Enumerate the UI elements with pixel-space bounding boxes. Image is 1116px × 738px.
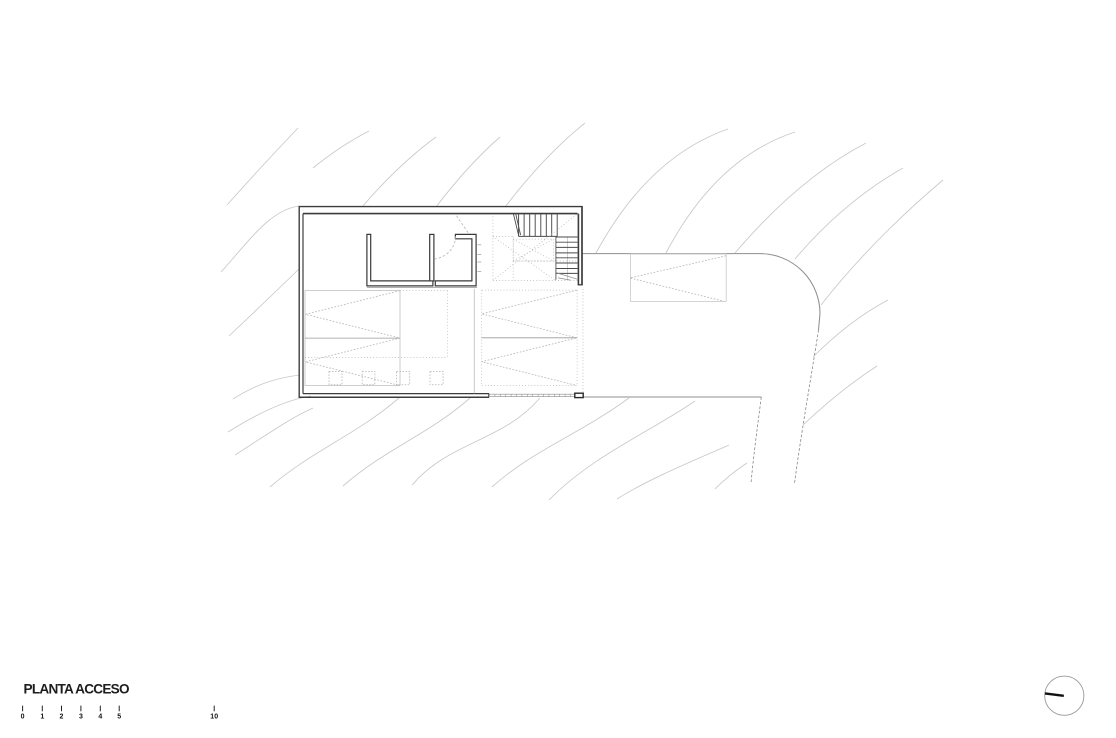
svg-text:2: 2 bbox=[60, 713, 64, 720]
svg-text:1: 1 bbox=[40, 713, 44, 720]
svg-text:4: 4 bbox=[98, 713, 102, 720]
svg-text:10: 10 bbox=[210, 713, 218, 720]
svg-text:3: 3 bbox=[79, 713, 83, 720]
svg-text:0: 0 bbox=[21, 713, 25, 720]
svg-text:5: 5 bbox=[117, 713, 121, 720]
svg-text:PLANTA ACCESO: PLANTA ACCESO bbox=[24, 681, 129, 696]
